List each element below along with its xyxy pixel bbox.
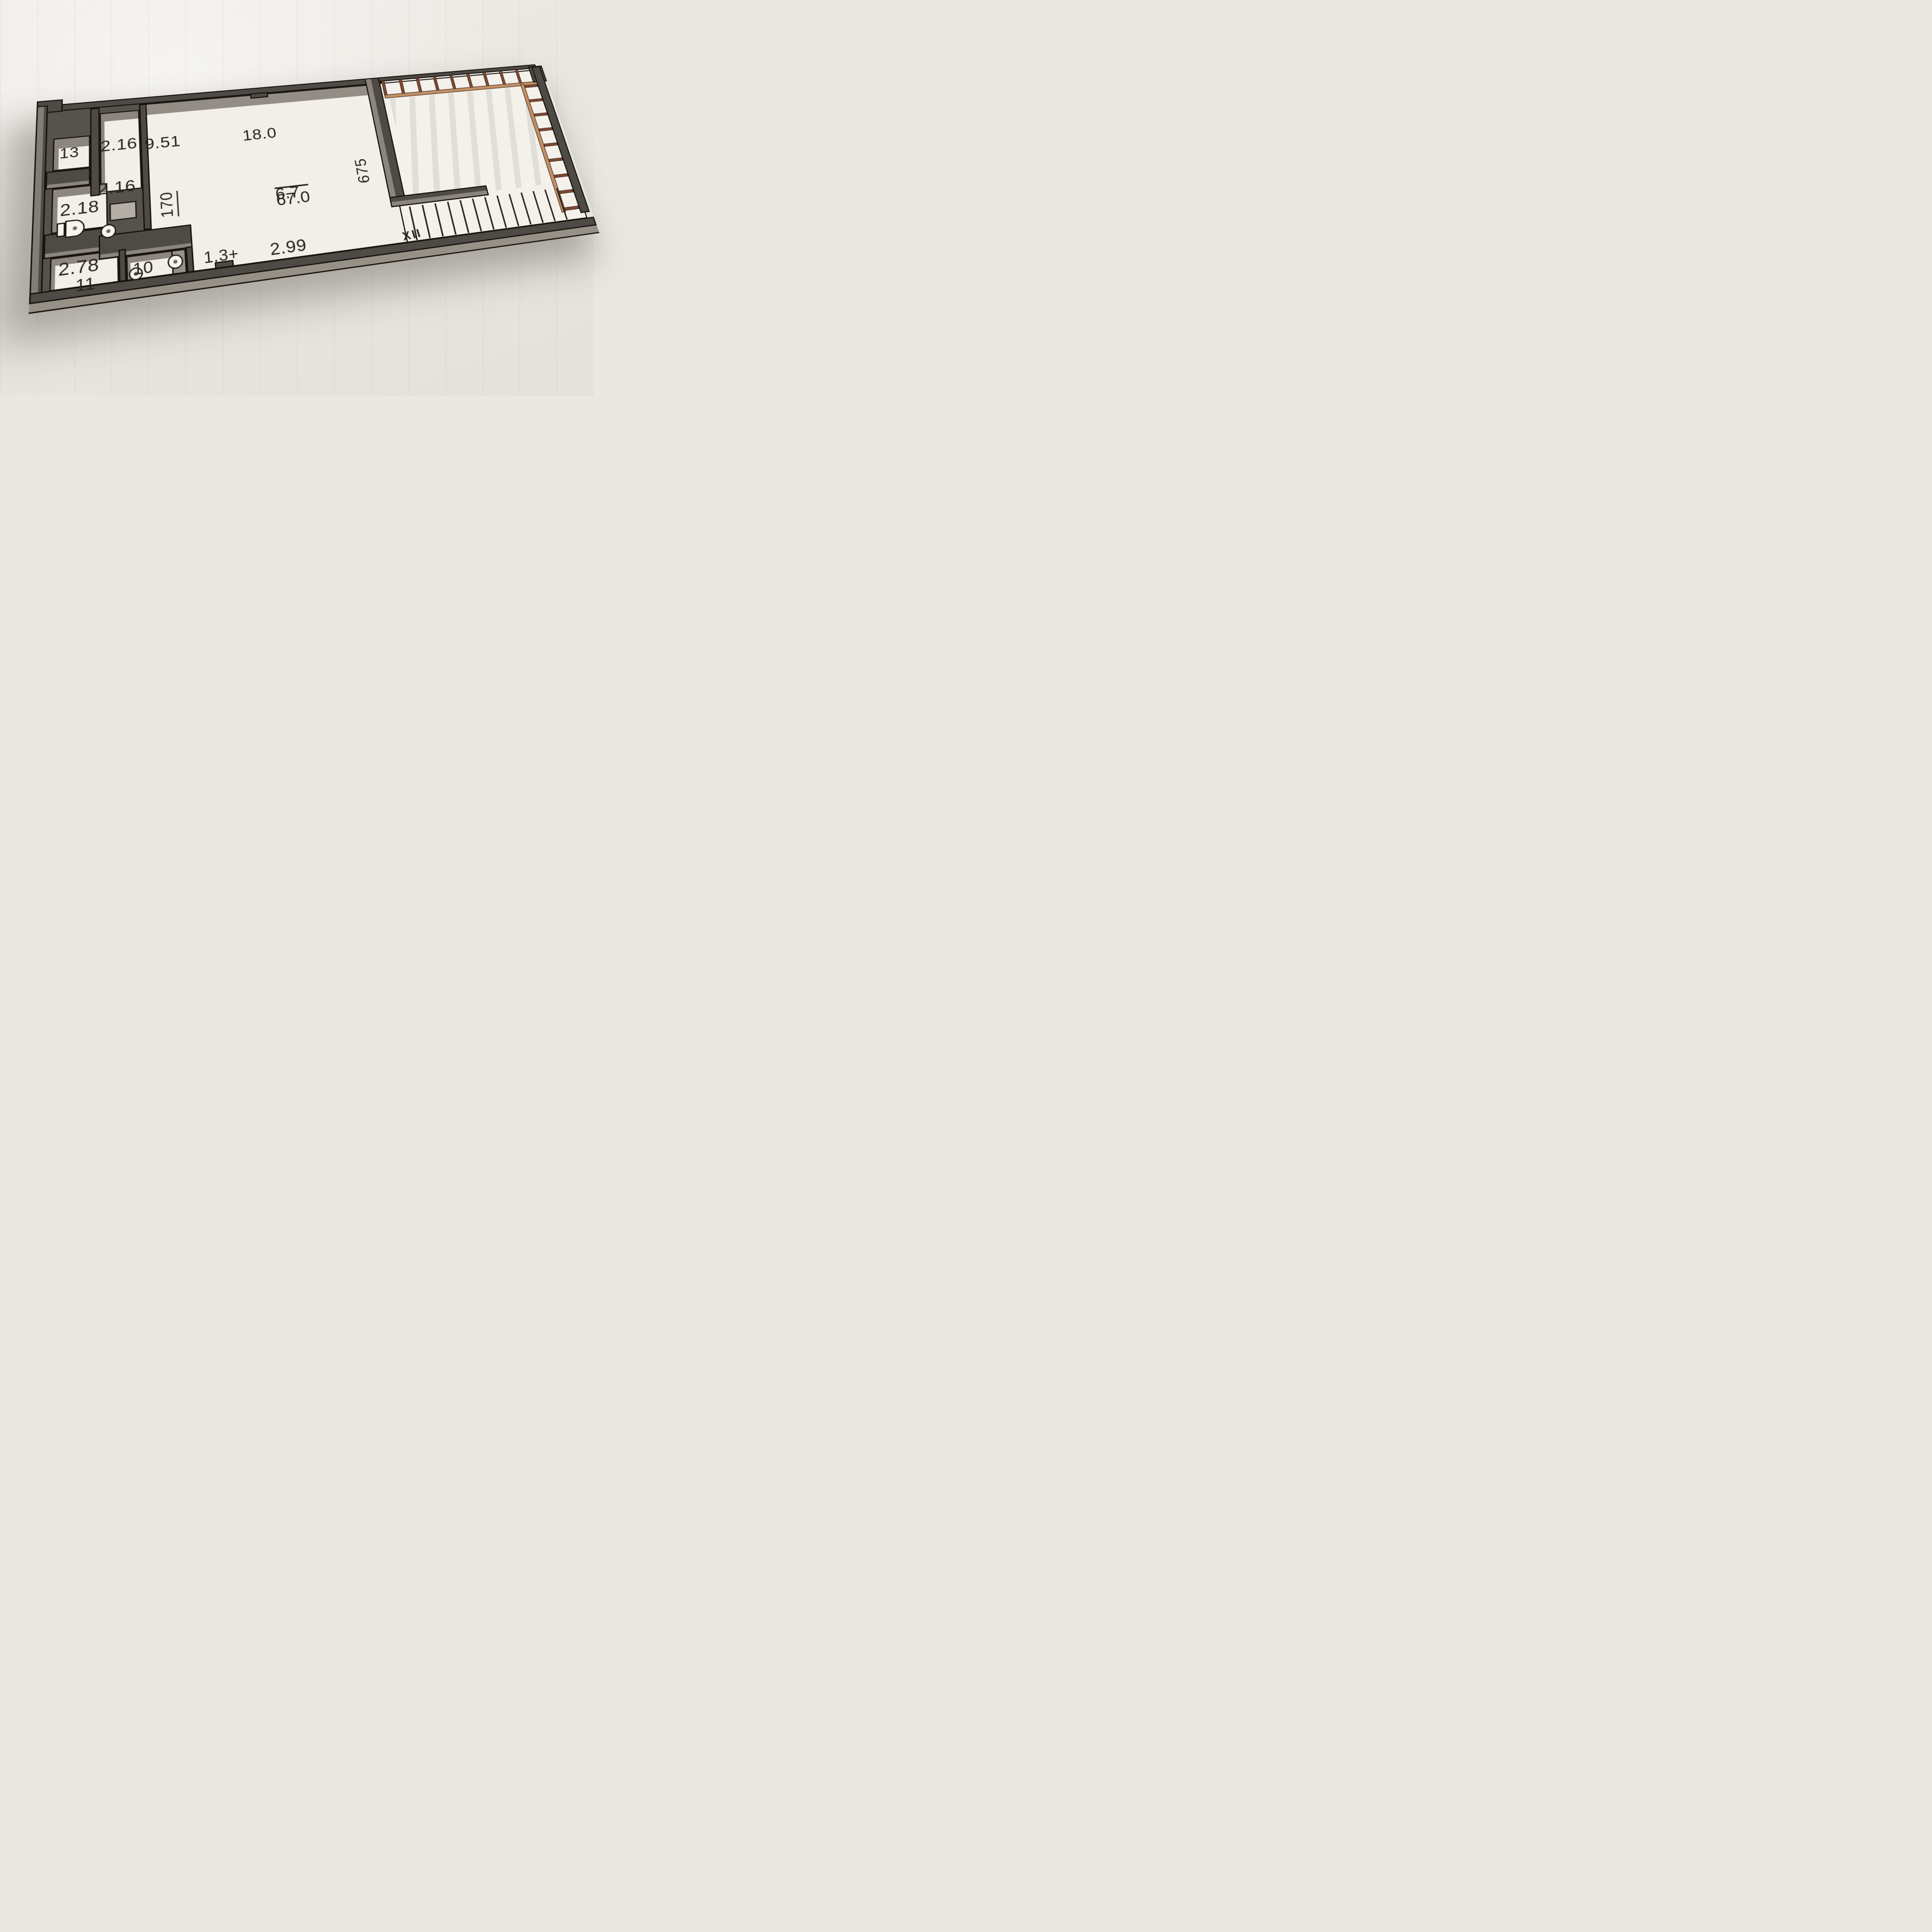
railing-post-icon — [525, 84, 538, 88]
label-hall-bottom: 2.16 — [97, 177, 136, 197]
stair-tread-icon — [472, 199, 482, 231]
railing-post-icon — [529, 98, 543, 102]
railing-post-icon — [398, 79, 405, 94]
stair-tread-icon — [459, 200, 469, 233]
railing-post-icon — [449, 75, 456, 89]
railing-post-icon — [466, 73, 473, 88]
railing-post-icon — [416, 78, 422, 92]
stair-tread-icon — [520, 192, 532, 224]
label-room-10: 10 — [133, 259, 154, 278]
toilet-tank-icon — [56, 223, 65, 238]
railing-post-icon — [544, 142, 558, 146]
railing-post-icon — [559, 189, 573, 194]
railing-post-icon — [554, 173, 568, 178]
drain-dot-icon — [73, 226, 77, 230]
label-room-11: 11 — [75, 276, 95, 295]
wall-room11-room10 — [119, 249, 127, 282]
railing-post-icon — [549, 158, 563, 162]
stage: 13 2.16 9.51 18.0 2.16 2.18 170 675 6.7 … — [0, 0, 594, 396]
railing-post-icon — [499, 71, 506, 85]
stair-tread-icon — [422, 205, 431, 238]
railing-post-icon — [534, 112, 548, 117]
label-bath-area: 2.18 — [60, 198, 99, 219]
label-living-area: 18.0 — [241, 125, 277, 143]
label-corridor-width: 170 — [158, 190, 179, 219]
stair-tread-icon — [484, 197, 495, 230]
stair-tread-icon — [447, 202, 457, 235]
stair-tread-icon — [509, 194, 519, 226]
stair-tread-icon — [544, 190, 556, 221]
stair-tread-icon — [532, 191, 544, 223]
stair-tread-icon — [497, 196, 507, 228]
floor-plan-3d: 13 2.16 9.51 18.0 2.16 2.18 170 675 6.7 … — [29, 64, 597, 305]
shower-tray-icon — [109, 201, 137, 221]
railing-post-icon — [433, 77, 440, 91]
label-hall-top: 2.16 — [100, 136, 138, 155]
railing-post-icon — [515, 69, 522, 83]
railing-post-icon — [539, 127, 553, 131]
drain-dot-icon — [106, 229, 111, 233]
label-corridor-area: 9.51 — [144, 133, 181, 152]
label-room-13: 13 — [60, 145, 80, 161]
drain-dot-icon — [173, 260, 177, 264]
stair-tread-icon — [434, 203, 444, 236]
label-area-denominator: 67.0 — [275, 184, 311, 210]
railing-post-icon — [483, 72, 490, 86]
